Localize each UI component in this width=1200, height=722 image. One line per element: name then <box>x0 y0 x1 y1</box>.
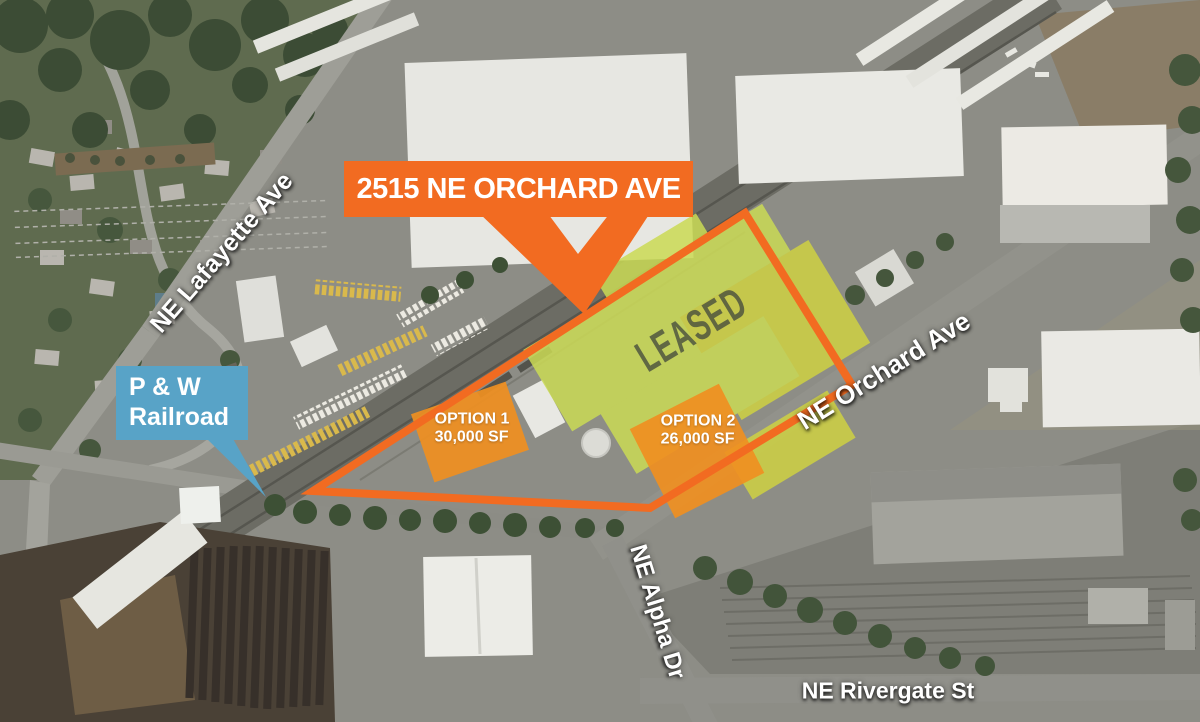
warehouse-roof <box>1041 329 1200 428</box>
option2-name: OPTION 2 <box>661 413 736 431</box>
option1-size: 30,000 SF <box>435 429 510 447</box>
option2-label: OPTION 2 26,000 SF <box>661 413 736 450</box>
warehouse-roof <box>735 68 964 184</box>
railroad-callout-line1: P & W <box>129 372 248 402</box>
railroad-callout: P & W Railroad <box>116 366 248 440</box>
title-callout-label: 2515 NE ORCHARD AVE <box>356 173 680 206</box>
aerial-map: 2515 NE ORCHARD AVE P & W Railroad LEASE… <box>0 0 1200 722</box>
warehouse-roof <box>1001 125 1167 208</box>
circular-pad <box>582 429 610 457</box>
satellite-background <box>0 0 1200 722</box>
street-label-rivergate: NE Rivergate St <box>802 678 975 705</box>
option2-size: 26,000 SF <box>661 431 736 449</box>
option1-name: OPTION 1 <box>435 411 510 429</box>
option1-label: OPTION 1 30,000 SF <box>435 411 510 448</box>
railroad-callout-line2: Railroad <box>129 402 248 432</box>
title-callout: 2515 NE ORCHARD AVE <box>344 161 693 217</box>
